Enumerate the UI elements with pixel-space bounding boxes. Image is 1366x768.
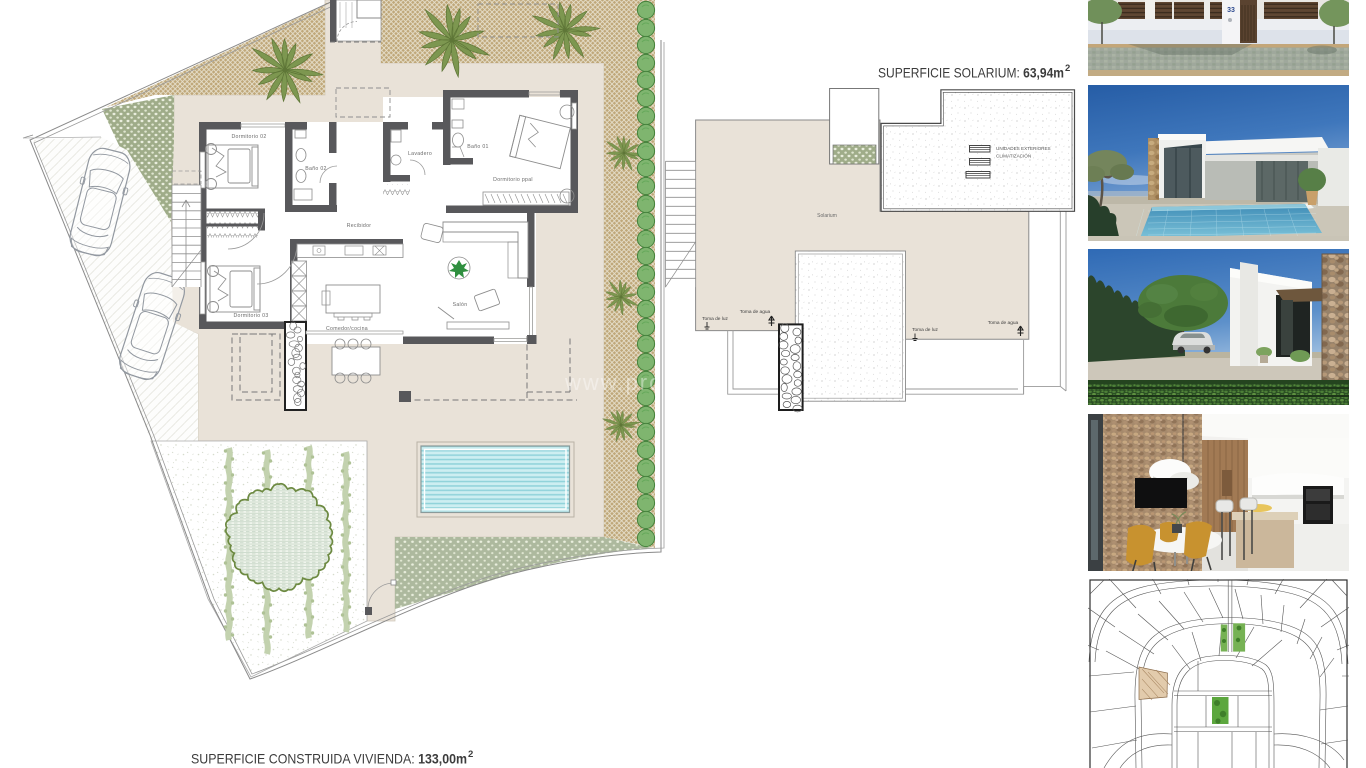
svg-text:Recibidor: Recibidor: [347, 223, 372, 229]
svg-text:2: 2: [468, 749, 473, 760]
svg-text:Toma de agua: Toma de agua: [988, 320, 1019, 326]
svg-text:Solarium: Solarium: [817, 213, 837, 219]
svg-text:Dormitorio ppal: Dormitorio ppal: [493, 177, 533, 183]
svg-text:Toma de agua: Toma de agua: [740, 309, 771, 315]
svg-text:www.pro: www.pro: [564, 370, 663, 395]
svg-text:CLIMATIZACIÓN: CLIMATIZACIÓN: [996, 153, 1031, 159]
svg-text:Lavadero: Lavadero: [408, 151, 432, 157]
svg-text:Toma de luz: Toma de luz: [912, 327, 938, 333]
svg-text:UNIDADES EXTERIORES: UNIDADES EXTERIORES: [996, 146, 1051, 151]
svg-text:33: 33: [1227, 7, 1235, 14]
svg-text:Baño 02: Baño 02: [305, 166, 326, 172]
svg-text:Toma de luz: Toma de luz: [702, 316, 728, 322]
svg-text:Dormitorio 02: Dormitorio 02: [231, 134, 266, 140]
svg-text:Salón: Salón: [453, 302, 468, 308]
svg-text:Dormitorio 03: Dormitorio 03: [233, 313, 268, 319]
svg-text:SUPERFICIE CONSTRUIDA VIVIENDA: SUPERFICIE CONSTRUIDA VIVIENDA: 133,00m: [191, 752, 467, 767]
svg-text:2: 2: [1065, 63, 1070, 74]
svg-text:Comedor/cocina: Comedor/cocina: [326, 326, 368, 332]
svg-text:SUPERFICIE SOLARIUM: 63,94m: SUPERFICIE SOLARIUM: 63,94m: [878, 66, 1064, 81]
svg-text:Baño 01: Baño 01: [467, 144, 488, 150]
